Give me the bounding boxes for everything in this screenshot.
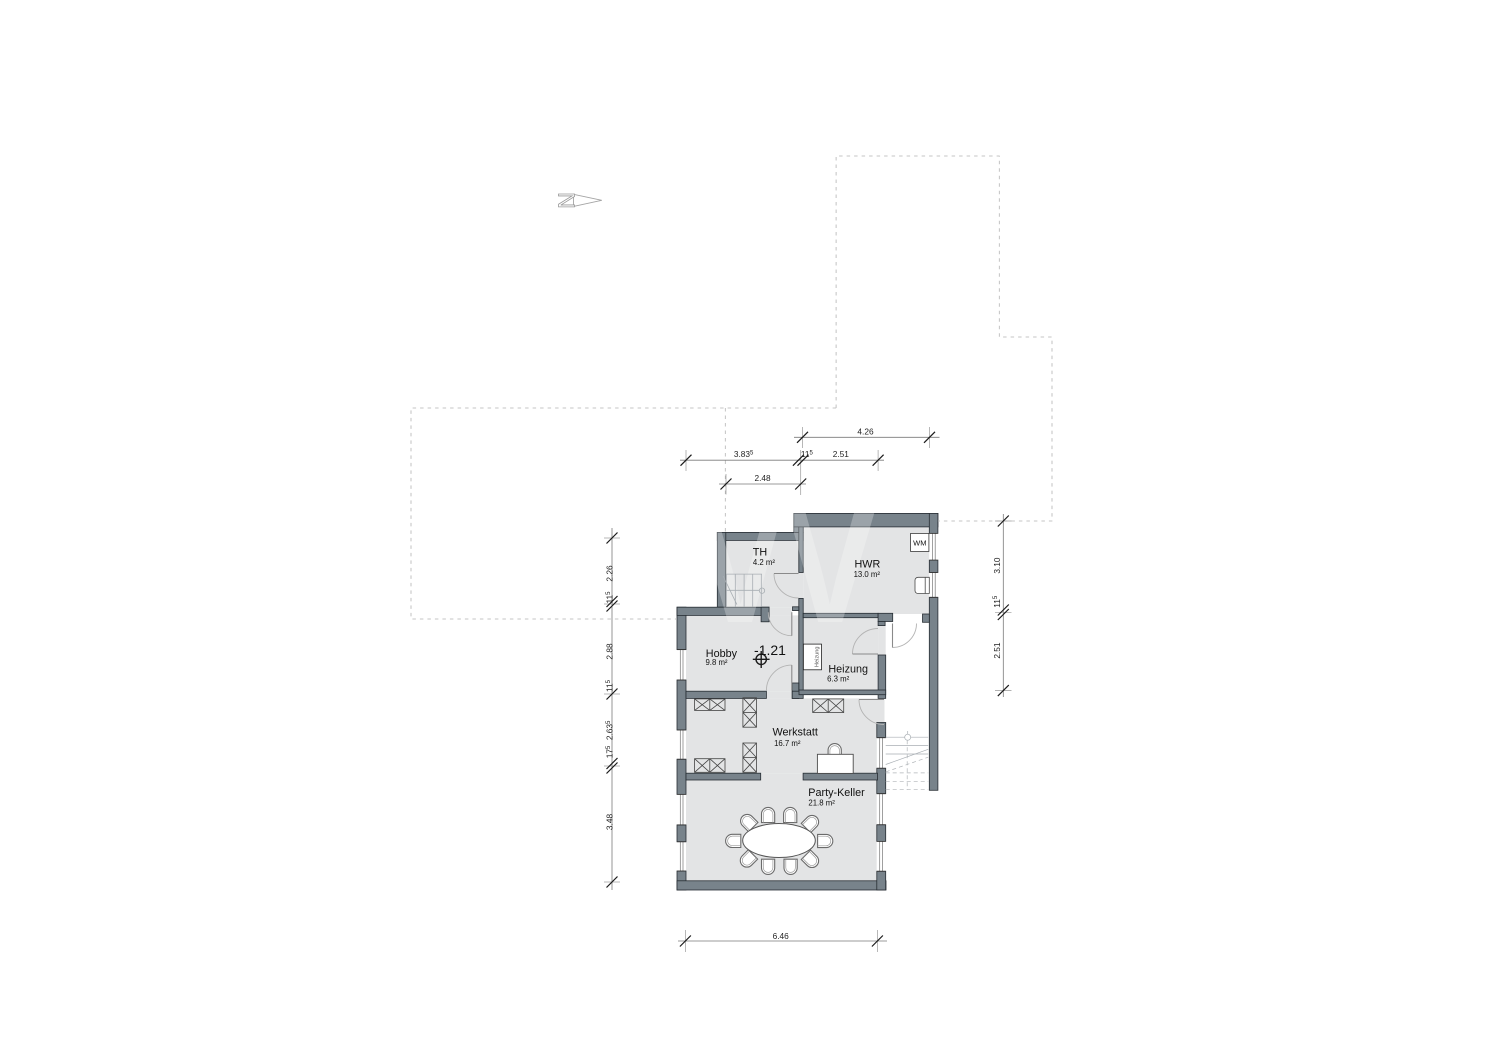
- svg-text:HWR: HWR: [855, 559, 881, 571]
- svg-text:3.10: 3.10: [992, 557, 1002, 574]
- svg-text:W: W: [684, 427, 887, 668]
- svg-text:4.2 m²: 4.2 m²: [753, 558, 775, 567]
- svg-text:2.26: 2.26: [605, 565, 615, 582]
- svg-text:WM: WM: [913, 539, 926, 548]
- svg-text:2.88: 2.88: [605, 643, 615, 660]
- svg-text:13.0 m²: 13.0 m²: [854, 570, 881, 579]
- svg-text:-1.21: -1.21: [754, 642, 786, 658]
- svg-text:6.3 m²: 6.3 m²: [827, 675, 849, 684]
- svg-text:Party-Keller: Party-Keller: [808, 787, 865, 799]
- svg-text:9.8 m²: 9.8 m²: [705, 658, 727, 667]
- svg-text:2.51: 2.51: [833, 449, 850, 459]
- svg-text:N: N: [554, 192, 580, 209]
- svg-text:Heizung: Heizung: [814, 647, 820, 668]
- svg-text:3.48: 3.48: [605, 814, 615, 831]
- svg-text:4.26: 4.26: [857, 427, 874, 437]
- svg-text:2.48: 2.48: [755, 473, 772, 483]
- svg-text:2.51: 2.51: [992, 642, 1002, 659]
- svg-text:6.46: 6.46: [773, 931, 790, 941]
- svg-text:21.8 m²: 21.8 m²: [808, 799, 835, 808]
- svg-text:Werkstatt: Werkstatt: [772, 727, 817, 739]
- svg-text:TH: TH: [753, 547, 767, 559]
- svg-text:16.7 m²: 16.7 m²: [774, 739, 801, 748]
